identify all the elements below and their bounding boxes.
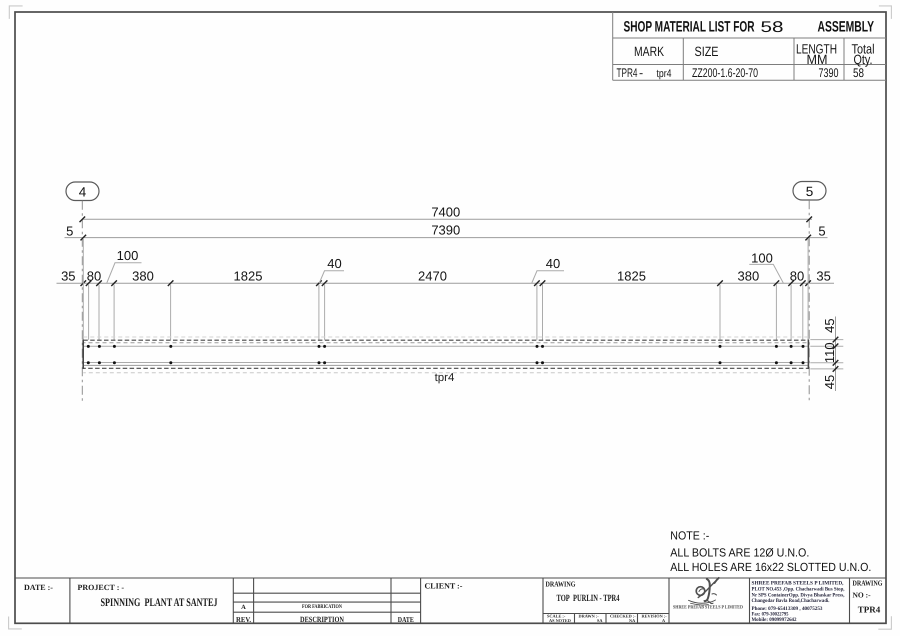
svg-text:35: 35 [816,269,830,284]
svg-text:DATE: DATE [398,615,414,624]
svg-text:1825: 1825 [617,269,646,284]
svg-text:A: A [662,618,666,623]
svg-text:NO :-: NO :- [853,591,872,600]
svg-text:TPR4: TPR4 [617,66,638,80]
svg-text:80: 80 [790,269,804,284]
svg-text:45: 45 [822,375,837,389]
svg-text:SHOP MATERIAL LIST FOR: SHOP MATERIAL LIST FOR [624,19,755,36]
svg-text:100: 100 [751,250,773,265]
svg-text:4: 4 [79,184,87,199]
svg-text:7400: 7400 [431,204,460,219]
svg-text:CLIENT :-: CLIENT :- [425,582,463,591]
svg-text:5: 5 [66,223,73,238]
svg-text:110: 110 [822,342,837,363]
svg-text:FOR FABRICATION: FOR FABRICATION [302,604,342,610]
svg-text:DRAWING: DRAWING [853,579,883,588]
svg-text:NOTE :-: NOTE :- [670,529,709,543]
svg-text:ALL BOLTS ARE 12Ø U.N.O.: ALL BOLTS ARE 12Ø U.N.O. [670,546,809,560]
svg-text:2470: 2470 [418,269,447,284]
svg-text:SHREE PREFAB STEELS P LIMITED: SHREE PREFAB STEELS P LIMITED [673,605,743,611]
svg-text:ASSEMBLY: ASSEMBLY [818,19,875,36]
svg-text:80: 80 [87,269,101,284]
svg-text:Mobile: 09099972642: Mobile: 09099972642 [752,617,797,623]
svg-text:AS NOTED: AS NOTED [549,618,571,623]
svg-text:DESCRIPTION: DESCRIPTION [300,615,344,624]
svg-text:SA: SA [597,618,603,623]
svg-text:100: 100 [117,248,139,263]
svg-text:58: 58 [761,19,784,36]
svg-text:Qty.: Qty. [854,52,873,67]
svg-text:1825: 1825 [234,269,263,284]
svg-text:tpr4: tpr4 [657,68,672,80]
svg-text:40: 40 [327,256,341,271]
svg-text:TOP PURLIN - TPR4: TOP PURLIN - TPR4 [557,594,620,604]
svg-text:380: 380 [738,269,760,284]
svg-text:35: 35 [61,269,75,284]
svg-text:7390: 7390 [431,223,460,238]
svg-text:REV.: REV. [236,615,251,624]
svg-text:40: 40 [546,256,560,271]
svg-text:5: 5 [818,223,825,238]
svg-text:58: 58 [853,66,864,80]
svg-text:ZZ200-1.6-20-70: ZZ200-1.6-20-70 [692,66,758,80]
svg-text:MARK: MARK [634,44,664,59]
svg-text:PROJECT : -: PROJECT : - [78,583,125,592]
svg-text:ALL HOLES ARE 16x22 SLOTTED U.: ALL HOLES ARE 16x22 SLOTTED U.N.O. [670,560,871,574]
svg-text:tpr4: tpr4 [435,372,455,384]
svg-text:45: 45 [822,318,837,332]
svg-text:SIZE: SIZE [695,44,719,59]
svg-text:7390: 7390 [819,66,839,80]
svg-text:SPINNING PLANT AT SANTEJ: SPINNING PLANT AT SANTEJ [101,597,218,609]
svg-text:-: - [639,66,643,80]
svg-text:5: 5 [806,184,814,199]
svg-text:A: A [241,604,246,611]
svg-text:380: 380 [132,269,154,284]
svg-text:NA: NA [629,618,636,623]
svg-text:TPR4: TPR4 [858,605,881,615]
svg-text:DRAWING: DRAWING [546,579,576,588]
svg-text:MM: MM [807,52,828,67]
svg-text:Changodar Bavla Road,Chacharwa: Changodar Bavla Road,Chacharwadi. [752,598,831,604]
svg-text:DATE :-: DATE :- [24,583,53,592]
